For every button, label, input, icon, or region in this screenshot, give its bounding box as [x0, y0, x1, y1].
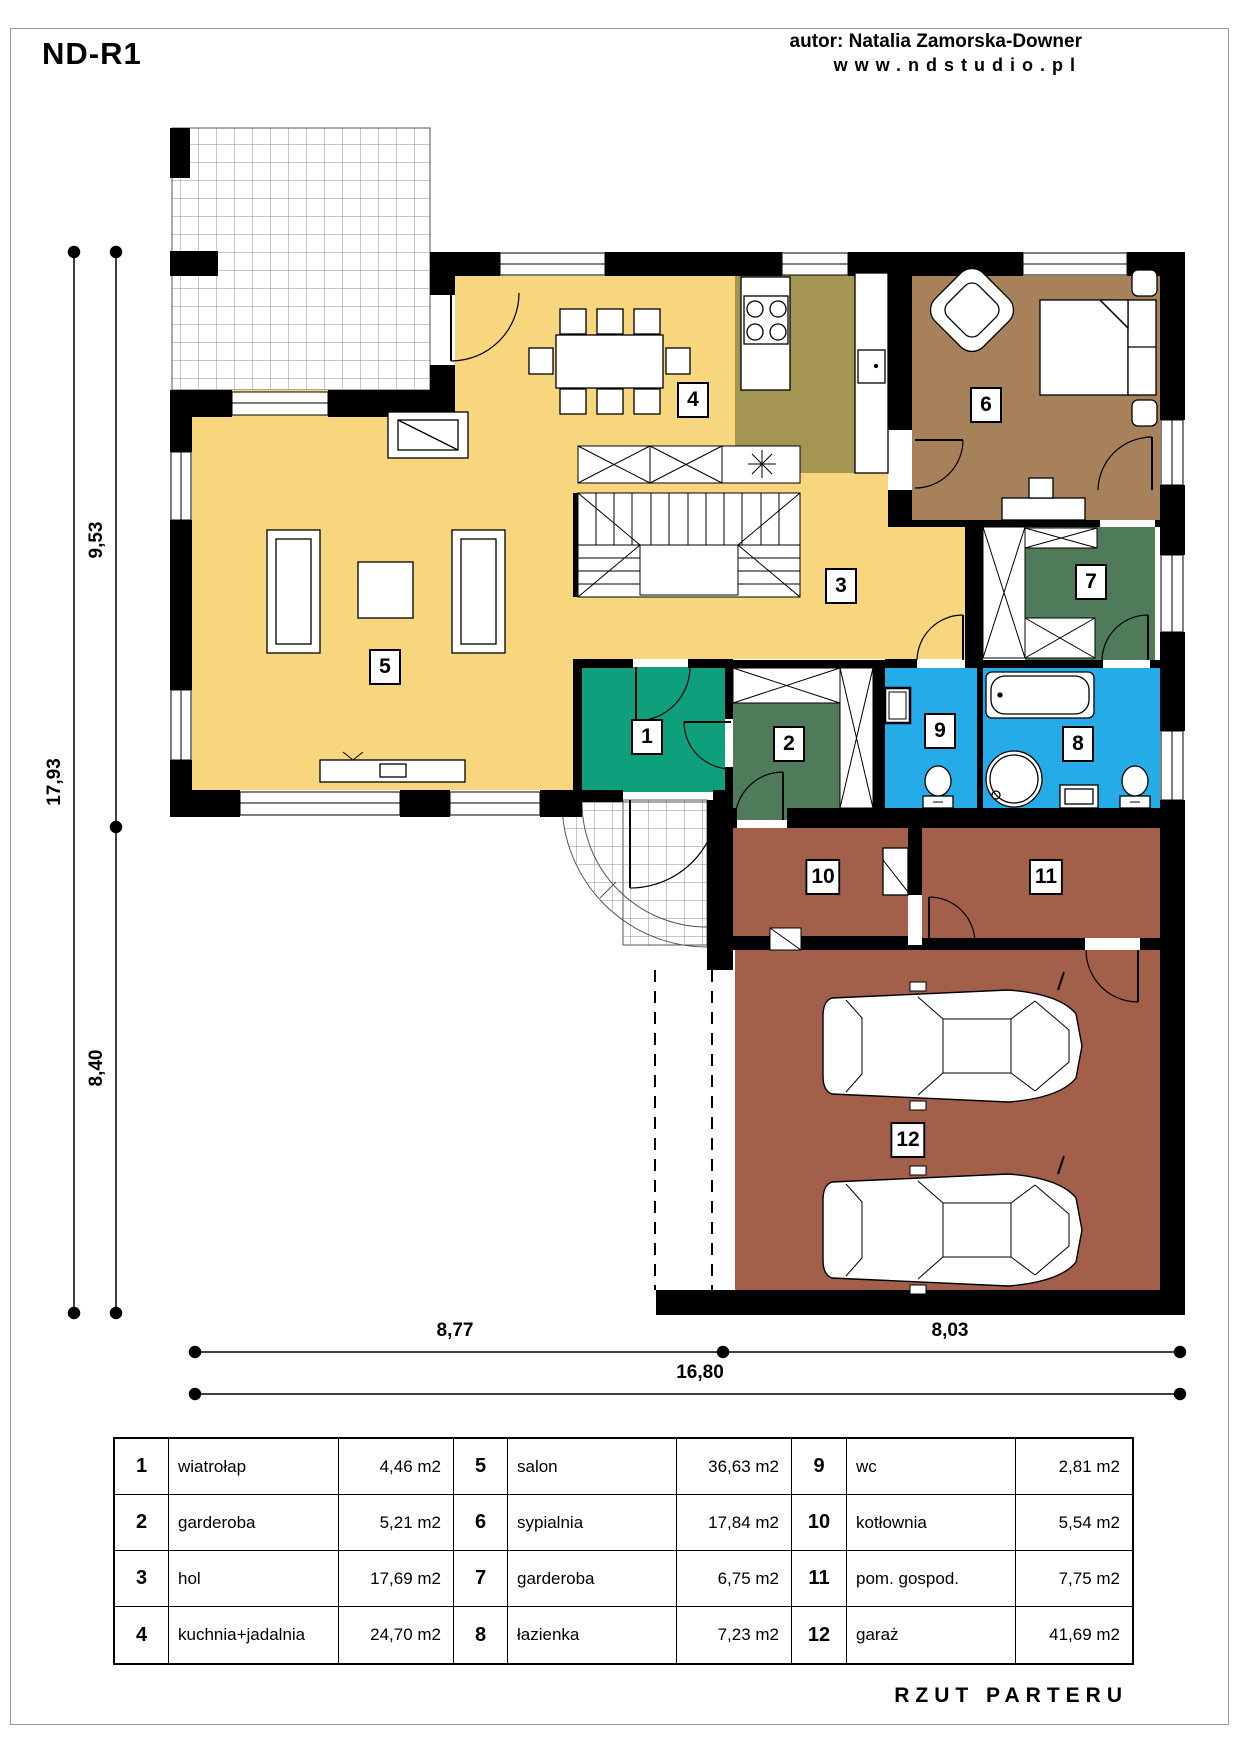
sofa-right [452, 530, 505, 653]
legend-num: 5 [454, 1439, 508, 1495]
legend-area: 36,63 m2 [677, 1439, 792, 1495]
legend-area: 5,54 m2 [1016, 1495, 1132, 1551]
wardrobe-column-hall [840, 668, 873, 808]
legend-num: 2 [115, 1495, 169, 1551]
window-bedroom-top [1023, 253, 1127, 275]
bed-double [1040, 300, 1156, 395]
legend-num: 1 [115, 1439, 169, 1495]
window-living-bottom-2 [450, 792, 540, 815]
room-legend-table: 1 wiatrołap 4,46 m2 5 salon 36,63 m2 9 w… [113, 1437, 1134, 1665]
legend-name: hol [169, 1551, 339, 1607]
legend-name: garderoba [169, 1495, 339, 1551]
wardrobe-room7-top [1025, 528, 1097, 548]
legend-area: 17,69 m2 [339, 1551, 454, 1607]
window-bedroom-right [1161, 420, 1183, 485]
stove-icon [744, 296, 788, 344]
legend-num: 8 [454, 1607, 508, 1663]
kitchen-base-cabinets [578, 446, 800, 483]
room-label-3: 3 [825, 568, 857, 604]
legend-name: garaż [847, 1607, 1016, 1663]
legend-num: 7 [454, 1551, 508, 1607]
dim-bottom-right: 8,03 [932, 1320, 969, 1342]
staircase [578, 493, 800, 597]
room-label-11: 11 [1029, 859, 1063, 895]
coffee-table [358, 562, 413, 618]
legend-area: 6,75 m2 [677, 1551, 792, 1607]
wardrobe-room2-top [733, 668, 840, 703]
legend-area: 24,70 m2 [339, 1607, 454, 1663]
legend-num: 11 [792, 1551, 847, 1607]
bathtub [986, 672, 1094, 718]
washing-machine [986, 751, 1042, 807]
bath-toilet [1120, 766, 1150, 808]
drawing-title: RZUT PARTERU [894, 1684, 1128, 1708]
dim-left-total: 17,93 [44, 758, 66, 806]
room-label-8: 8 [1062, 726, 1094, 762]
floor-plan-sheet: ND-R1 autor: Natalia Zamorska-Downer www… [0, 0, 1240, 1754]
legend-area: 5,21 m2 [339, 1495, 454, 1551]
legend-num: 3 [115, 1551, 169, 1607]
legend-name: kotłownia [847, 1495, 1016, 1551]
nightstand-top [1132, 270, 1157, 296]
wardrobe-column-suite [983, 527, 1025, 658]
window-bathroom-right [1161, 731, 1183, 800]
legend-area: 7,75 m2 [1016, 1551, 1132, 1607]
legend-name: wc [847, 1439, 1016, 1495]
legend-num: 12 [792, 1607, 847, 1663]
legend-area: 7,23 m2 [677, 1607, 792, 1663]
fireplace [388, 412, 468, 458]
bath-sink [1060, 785, 1098, 808]
kitchen-tall-units [855, 273, 888, 473]
kitchen-counter [741, 277, 790, 390]
legend-num: 6 [454, 1495, 508, 1551]
legend-name: sypialnia [508, 1495, 677, 1551]
window-living-bottom-1 [240, 792, 400, 815]
legend-area: 41,69 m2 [1016, 1607, 1132, 1663]
legend-num: 9 [792, 1439, 847, 1495]
window-living-left-2 [171, 690, 191, 760]
legend-area: 17,84 m2 [677, 1495, 792, 1551]
room-label-1: 1 [631, 719, 663, 755]
legend-area: 4,46 m2 [339, 1439, 454, 1495]
legend-area: 2,81 m2 [1016, 1439, 1132, 1495]
legend-name: wiatrołap [169, 1439, 339, 1495]
room-label-12: 12 [890, 1122, 925, 1158]
legend-name: salon [508, 1439, 677, 1495]
sofa-left [267, 530, 320, 653]
room-label-6: 6 [970, 387, 1002, 423]
wardrobe-room7-bottom [1025, 618, 1095, 658]
legend-num: 10 [792, 1495, 847, 1551]
dim-left-upper: 9,53 [86, 522, 108, 559]
window-terrace-wall [232, 392, 328, 415]
room-label-9: 9 [924, 713, 956, 749]
legend-name: łazienka [508, 1607, 677, 1663]
legend-name: kuchnia+jadalnia [169, 1607, 339, 1663]
dim-bottom-total: 16,80 [676, 1362, 724, 1384]
window-living-left-1 [171, 452, 191, 520]
room-label-7: 7 [1075, 564, 1107, 600]
window-kitchen-top [782, 253, 848, 275]
room-label-4: 4 [677, 382, 709, 418]
wc-toilet [923, 766, 953, 808]
room-label-10: 10 [805, 859, 840, 895]
window-wardrobe7-right [1161, 555, 1183, 632]
legend-name: garderoba [508, 1551, 677, 1607]
room-label-2: 2 [773, 726, 805, 762]
wc-sink [885, 688, 910, 723]
dim-bottom-left: 8,77 [437, 1320, 474, 1342]
dim-left-lower: 8,40 [86, 1050, 108, 1087]
garage-door-opening [655, 970, 712, 1290]
boiler [883, 848, 908, 895]
kitchen-sink-symbol [748, 450, 776, 478]
nightstand-bottom [1132, 400, 1157, 426]
legend-name: pom. gospod. [847, 1551, 1016, 1607]
window-dining-top [500, 253, 605, 275]
legend-num: 4 [115, 1607, 169, 1663]
step-hatch-boiler [770, 928, 801, 950]
room-label-5: 5 [369, 649, 401, 685]
